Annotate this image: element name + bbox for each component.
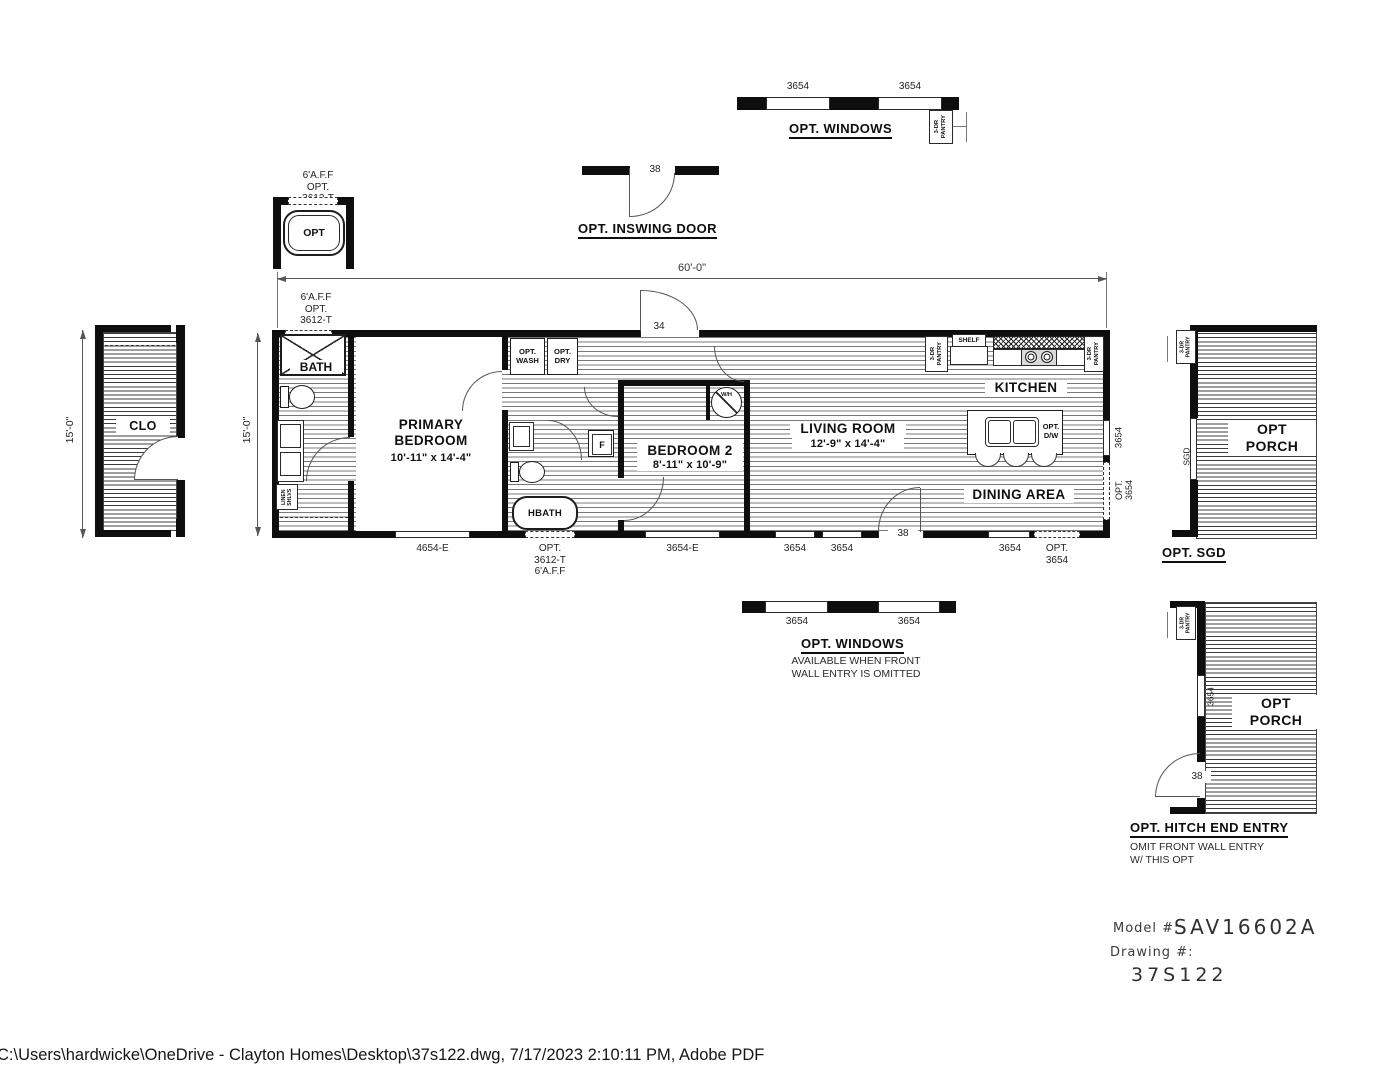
toilet-tank (510, 462, 519, 482)
wall (273, 197, 281, 269)
window-label: 3654 (885, 81, 935, 93)
toilet-bowl (519, 461, 545, 483)
sink (280, 452, 301, 476)
window-label: 3654 (770, 543, 820, 555)
wall (1170, 807, 1205, 814)
window-label: OPT. 3654 (1114, 461, 1136, 519)
closet-wall (706, 386, 710, 420)
door-size-label: 38 (1183, 771, 1211, 783)
wall (675, 166, 719, 175)
dimension-line (277, 278, 1107, 279)
shelf: SHELF (952, 334, 986, 347)
window (822, 531, 862, 538)
door-size-label: 38 (644, 164, 666, 176)
wall (1190, 480, 1198, 537)
room-size-bedroom2: 8'-11" x 10'-9" (637, 459, 743, 471)
wall (95, 325, 171, 332)
wall (1190, 325, 1317, 332)
wall (177, 343, 185, 438)
sink-basin (513, 426, 530, 447)
hitch-entry-note: OMIT FRONT WALL ENTRY W/ THIS OPT (1130, 841, 1280, 867)
caption-opt-sgd: OPT. SGD (1162, 545, 1226, 563)
window (1103, 420, 1110, 456)
door-leaf (134, 479, 178, 480)
file-path-text: C:\Users\hardwicke\OneDrive - Clayton Ho… (0, 1046, 764, 1065)
interior-wall (502, 337, 508, 370)
toilet-bowl (289, 385, 315, 409)
pantry-box: 3-DR PANTRY (1176, 606, 1196, 640)
wall (1197, 601, 1205, 675)
room-label-bedroom2: BEDROOM 2 (637, 443, 743, 459)
counter-crosshatch (993, 336, 1085, 349)
pantry-box: 3-DR PANTRY (925, 336, 948, 372)
room-label-dining: DINING AREA (964, 487, 1074, 503)
tick-line (1167, 336, 1168, 362)
wall (582, 166, 630, 175)
room-size-living: 12'-9" x 14'-4" (792, 438, 904, 450)
pantry-label: 3-DR PANTRY (1180, 613, 1192, 634)
pantry-box: 3-DR PANTRY (1176, 330, 1196, 364)
porch-label: OPT PORCH (1228, 421, 1316, 455)
bath-label: BATH (290, 360, 342, 374)
room-label-kitchen: KITCHEN (985, 380, 1067, 396)
dimension-label: 15'-0" (241, 408, 253, 452)
dimension-line (82, 330, 83, 538)
interior-wall (348, 481, 354, 531)
caption-opt-windows-bottom: OPT. WINDOWS (801, 636, 904, 654)
dimension-label: 60'-0" (662, 262, 722, 274)
pantry-box: 3-DR PANTRY (1084, 336, 1104, 372)
caption-opt-windows-top: OPT. WINDOWS (789, 121, 892, 139)
interior-wall (618, 380, 750, 386)
wall (176, 325, 185, 343)
closet-label: CLO (116, 419, 170, 434)
sink (280, 424, 301, 448)
opt-washer-label: OPT. WASH (511, 340, 544, 373)
furnace-label: F (592, 434, 612, 455)
model-number-label: Model #: (1113, 921, 1179, 936)
door-opening (177, 438, 185, 480)
water-heater-label: W/H (712, 389, 741, 400)
pantry-label: 3-DR PANTRY (1180, 337, 1192, 358)
pantry-label: 3-DR PANTRY (930, 342, 943, 365)
opt-tub-label: OPT (292, 222, 336, 244)
floorplan-sheet: 3654 3654 3-DR PANTRY OPT. WINDOWS 38 OP… (0, 0, 1400, 1082)
interior-wall (618, 386, 624, 478)
door-size-label: 34 (646, 321, 672, 333)
drawing-number-label: Drawing #: (1110, 945, 1193, 960)
dashed-line (280, 517, 348, 518)
wall (95, 325, 103, 537)
dimension-line (257, 333, 258, 536)
linen-closet: LINEN SHLVS (276, 484, 298, 510)
dimension-label: 15'-0" (64, 408, 76, 452)
pantry-label: 3-DR PANTRY (934, 115, 947, 138)
interior-wall (744, 380, 750, 531)
window-label: 3654 (1114, 420, 1125, 456)
window-label: 3654 (817, 543, 867, 555)
sgd-label: SGD (1181, 439, 1192, 475)
shelf-label: SHELF (959, 337, 980, 344)
window (878, 601, 940, 613)
burner (1041, 351, 1053, 363)
cabinet (950, 346, 988, 365)
door-size-label: 38 (888, 528, 918, 540)
interior-wall (618, 520, 624, 531)
wall (1172, 530, 1198, 537)
opt-window (288, 197, 338, 205)
tick-line (966, 112, 967, 142)
tick-line (953, 126, 967, 127)
model-number-value: SAV16602A (1174, 915, 1317, 939)
window (645, 531, 720, 538)
door-leaf (920, 488, 921, 532)
window-label: 6'A.F.F OPT. 3612-T (288, 292, 344, 327)
interior-wall (348, 337, 354, 437)
window-label: 3654 (1205, 679, 1216, 715)
door-leaf (1155, 796, 1200, 797)
door-swing-arc (630, 173, 675, 217)
opt-window (1034, 531, 1080, 538)
window-label: OPT. 3612-T 6'A.F.F (515, 543, 585, 578)
room-label-primary: PRIMARY BEDROOM (383, 417, 479, 450)
room-size-primary: 10'-11" x 14'-4" (377, 452, 485, 464)
linen-label: LINEN SHLVS (281, 487, 293, 507)
closet-rod-line (105, 345, 175, 346)
opt-window (525, 531, 575, 538)
tick-line (1167, 612, 1168, 638)
hbath-label: HBATH (514, 503, 576, 523)
toilet-tank (280, 386, 289, 408)
opt-windows-note: AVAILABLE WHEN FRONT WALL ENTRY IS OMITT… (786, 655, 926, 681)
window (395, 531, 470, 538)
pantry-box: 3-DR PANTRY (929, 110, 953, 144)
sink-basin (988, 420, 1011, 444)
porch-label: OPT PORCH (1232, 695, 1320, 729)
wall (346, 197, 354, 269)
interior-wall (502, 410, 508, 531)
caption-hitch-entry: OPT. HITCH END ENTRY (1130, 820, 1288, 838)
window (766, 97, 830, 110)
window-label: 3654 (773, 81, 823, 93)
window (765, 601, 828, 613)
window-label: 3654 (772, 616, 822, 628)
drawing-number-value: 37S122 (1131, 964, 1228, 986)
window-label: 3654 (985, 543, 1035, 555)
opt-dishwasher-label: OPT. D/W (1038, 421, 1063, 443)
window-label: OPT. 3654 (1032, 543, 1082, 566)
opt-dryer-label: OPT. DRY (548, 340, 577, 373)
wall (95, 530, 171, 537)
window (878, 97, 942, 110)
caption-opt-inswing-door: OPT. INSWING DOOR (578, 221, 717, 239)
window-label: 4654-E (395, 543, 470, 555)
opt-window (1103, 462, 1110, 520)
burner (1025, 351, 1037, 363)
window (775, 531, 815, 538)
window-label: 3654-E (645, 543, 720, 555)
window (988, 531, 1030, 538)
pantry-label: 3-DR PANTRY (1087, 342, 1100, 365)
window-label: 3654 (884, 616, 934, 628)
wall (176, 519, 185, 537)
room-label-living: LIVING ROOM (790, 421, 906, 437)
sink-basin (1013, 420, 1036, 444)
